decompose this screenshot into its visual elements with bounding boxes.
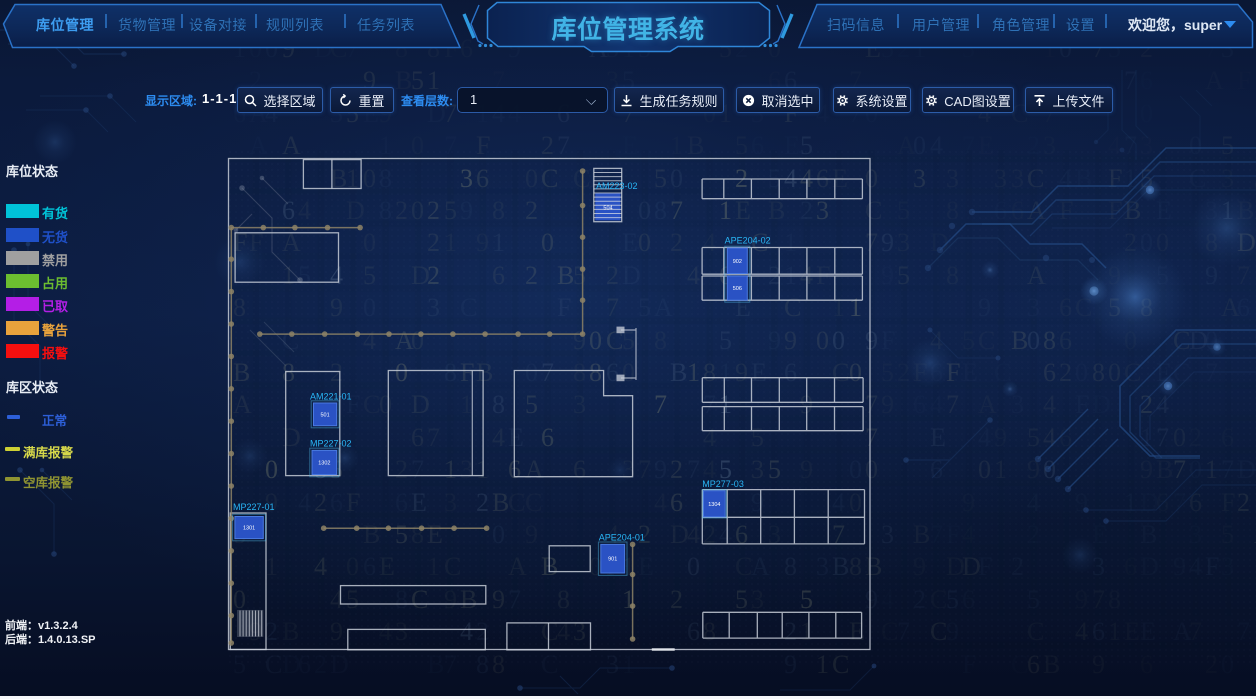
svg-text:APE204-01: APE204-01 bbox=[599, 533, 645, 543]
svg-text:MP227-02: MP227-02 bbox=[310, 439, 352, 449]
svg-text:AM221-01: AM221-01 bbox=[310, 392, 352, 402]
svg-text:AM223-02: AM223-02 bbox=[596, 181, 638, 191]
svg-text:901: 901 bbox=[608, 557, 617, 563]
svg-text:MP227-01: MP227-01 bbox=[233, 502, 275, 512]
svg-text:504: 504 bbox=[603, 206, 612, 212]
svg-text:APE204-02: APE204-02 bbox=[725, 236, 771, 246]
svg-text:1304: 1304 bbox=[708, 502, 720, 508]
svg-text:902: 902 bbox=[733, 259, 742, 265]
svg-text:MP277-03: MP277-03 bbox=[702, 479, 744, 489]
svg-text:506: 506 bbox=[733, 286, 742, 292]
svg-text:1301: 1301 bbox=[243, 526, 255, 532]
svg-text:501: 501 bbox=[321, 412, 330, 418]
svg-text:1302: 1302 bbox=[318, 461, 330, 467]
